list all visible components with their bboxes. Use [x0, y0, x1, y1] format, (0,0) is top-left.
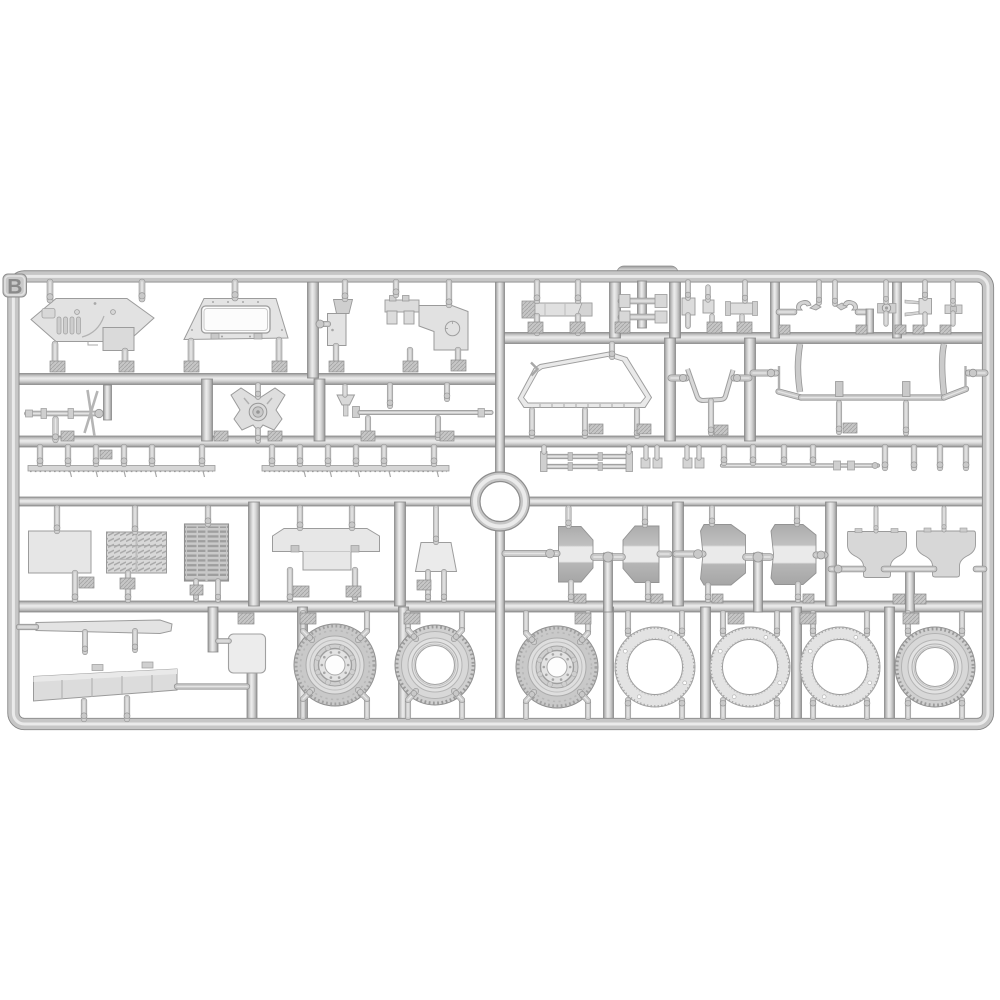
svg-text:B: B	[7, 276, 22, 299]
